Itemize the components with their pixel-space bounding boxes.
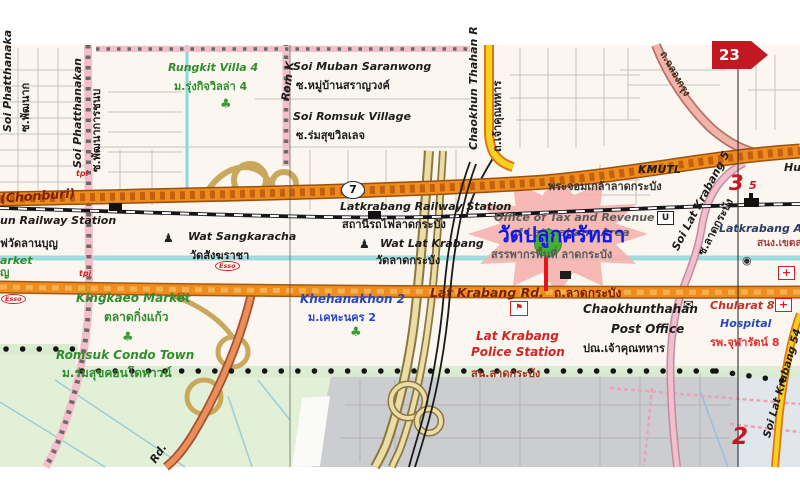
label-latkrabang-area-th: สนง.เขตลาดกระ	[757, 239, 800, 250]
label-kmutl-th: พระจอมเกล้าลาดกระบัง	[548, 181, 662, 193]
label-romsuk-village-th: ซ.ร่มสุขวิลเลจ	[296, 130, 365, 142]
label-lanbun-station-th: ฟวัดลานบุญ	[0, 238, 58, 250]
map-page: Soi Phatthanaka ซ.พัฒนาก Soi Phatthanaka…	[0, 0, 800, 500]
road-label-chaokhun-thahan: Chaokhun Thahan R	[468, 26, 480, 150]
label-post-office-line2: Post Office	[611, 323, 684, 336]
label-police-th: สน.ลาดกระบัง	[471, 368, 540, 380]
label-romsuk-condo: Romsuk Condo Town	[56, 349, 194, 362]
government-office-icon: ◉	[742, 255, 752, 266]
page-marker-3: 3	[729, 171, 744, 195]
label-wat-sangkaracha: Wat Sangkaracha	[188, 231, 296, 243]
road-label-lat-krabang-rd: Lat Krabang Rd.	[430, 286, 544, 299]
tree-icon: ♣	[220, 98, 232, 111]
label-tax-office-th: สรรพากรพื้นที่ ลาดกระบัง	[491, 249, 612, 261]
label-rungkit-villa: Rungkit Villa 4	[168, 62, 258, 74]
route-7-shield: 7	[341, 181, 365, 199]
label-muban-saranwong: Soi Muban Saranwong	[293, 61, 431, 73]
temple-buddha-icon: ♟	[163, 232, 174, 244]
label-market-partial: arket	[0, 255, 33, 267]
label-latkrabang-station-th: สถานีรถไฟลาดกระบัง	[342, 219, 446, 231]
page-marker-3-sub: 5	[749, 179, 757, 192]
label-kingkaeo-market-th: ตลาดกิ่งแก้ว	[104, 311, 169, 324]
label-lanbun-station: un Railway Station	[0, 215, 116, 227]
page-marker-2: 2	[732, 424, 748, 450]
label-rungkit-villa-th: ม.รุ่งกิจวิลล่า 4	[174, 81, 247, 93]
post-office-envelope-icon: ✉	[683, 299, 694, 312]
road-label-soi-phatthanakan: Soi Phatthanakan	[72, 58, 84, 168]
label-market-partial-th: ญ	[0, 267, 9, 279]
label-chularat-line2: Hospital	[720, 318, 771, 330]
label-post-office-th: ปณ.เจ้าคุณทหาร	[583, 343, 665, 355]
label-wat-sangkaracha-th: วัดสังฆราชา	[190, 250, 249, 262]
road-label-soi-phatthanakan-th: ซ.พัฒนาการชนบ	[91, 89, 103, 172]
label-latkrabang-area: Latkrabang Are	[719, 223, 800, 235]
university-icon: U	[657, 211, 674, 225]
label-kmutl: KMUTL	[638, 164, 681, 176]
tpi-station-icon: tpi	[79, 269, 91, 278]
label-police-line1: Lat Krabang	[476, 330, 559, 343]
label-wat-lat-krabang: Wat Lat Krabang	[380, 238, 484, 250]
label-romsuk-village: Soi Romsuk Village	[293, 111, 411, 123]
road-label-lat-krabang-rd-th: ถ.ลาดกระบัง	[554, 287, 621, 300]
road-label-chaokhun-thahan-th: ถ.เจ้าคุณทหาร	[492, 81, 504, 152]
label-hu-partial: Hu	[784, 162, 800, 174]
temple-buddha-icon: ♟	[359, 238, 370, 250]
road-label-soi-phatthanaka: Soi Phatthanaka	[2, 30, 14, 132]
label-romsuk-condo-th: ม.ร่มสุขคอนโดทาวน์	[62, 367, 172, 380]
label-muban-saranwong-th: ซ.หมู่บ้านสราญวงค์	[296, 80, 390, 92]
esso-station-icon: Esso	[1, 294, 26, 304]
label-khehanakhon: Khehanakhon 2	[300, 293, 405, 306]
tree-icon: ♣	[350, 326, 362, 339]
hospital-cross-icon: +	[778, 266, 795, 280]
label-kingkaeo-market: Kingkaeo Market	[76, 292, 191, 305]
tree-icon: ♣	[122, 331, 134, 344]
label-police-line2: Police Station	[471, 346, 565, 359]
label-chularat-line1: Chularat 8	[710, 300, 775, 312]
building-marker	[560, 271, 571, 279]
hospital-cross-icon: +	[775, 298, 792, 312]
label-chularat-th: รพ.จุฬารัตน์ 8	[710, 337, 780, 349]
label-khehanakhon-th: ม.เคหะนคร 2	[308, 312, 376, 324]
label-latkrabang-station: Latkrabang Railway Station	[340, 201, 511, 213]
label-post-office-line1: Chaokhunthahan	[583, 303, 698, 316]
road-label-soi-phatthanaka-th: ซ.พัฒนาก	[20, 83, 32, 132]
esso-station-icon: Esso	[215, 261, 240, 271]
label-wat-lat-krabang-th: วัดลาดกระบัง	[376, 255, 440, 267]
tpi-station-icon: tpi	[76, 169, 88, 178]
market-icon: ⚖	[176, 290, 187, 302]
police-station-icon: ⚑	[510, 301, 528, 316]
